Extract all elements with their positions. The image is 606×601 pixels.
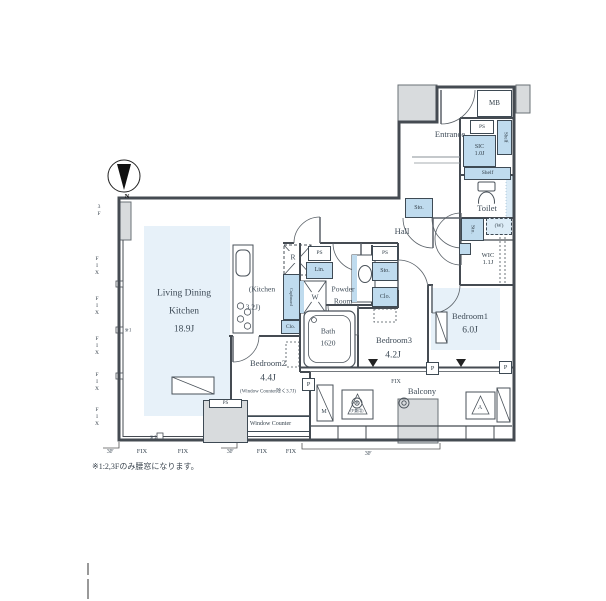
window-counter-label: Window Counter [250, 421, 291, 428]
powder-room-label-line2: Room [334, 297, 352, 305]
washing-machine-label: W [311, 293, 318, 301]
bedroom2-pipe-space [286, 342, 299, 367]
hatch-a-label: A [478, 405, 482, 411]
meter-box-mb: MB [477, 90, 512, 117]
shelf-label: Shelf [502, 132, 508, 143]
neighbor-block [398, 85, 437, 122]
fix-label-vertical: FIX [94, 407, 100, 428]
floor-plan: Living Dining Kitchen 18.9J (Kitchen 3.2… [0, 0, 606, 601]
sic-label: SIC [475, 144, 484, 151]
wic-label: WIC [482, 252, 495, 259]
footnote: ※1:2,3Fのみ腰窓になります。 [92, 461, 199, 472]
sic-closet: SIC 1.0J [463, 135, 496, 167]
bedroom1-size: 6.0J [462, 326, 478, 336]
floor-label: 3F [227, 449, 234, 456]
washer-space-label: (W) [495, 223, 504, 229]
triangle-marker [368, 359, 378, 367]
floor-label: 3F [107, 449, 114, 456]
floor-plan-drawing [0, 0, 606, 601]
hatch-b-note: (F兼用) [351, 409, 364, 413]
fix-label: FIX [257, 449, 267, 456]
hall-label: Hall [395, 227, 410, 236]
pillar-marker: P [499, 361, 512, 374]
fix-label-vertical: FIX [94, 256, 100, 277]
ps-label: PS [479, 124, 485, 130]
closet-bedroom3: Clo. [372, 287, 398, 307]
balcony-label: Balcony [408, 387, 436, 396]
pipe-space-entrance: PS [470, 120, 494, 134]
pillar-label: P [431, 365, 435, 372]
bath-label: Bath [320, 327, 336, 335]
clo-label: Clo. [380, 294, 390, 301]
bedroom1-label: Bedroom1 [452, 312, 488, 321]
floor-label: 3F [365, 451, 372, 458]
sto-label: Sto. [380, 268, 390, 275]
fix-label: FIX [137, 449, 147, 456]
fix-label-vertical: FIX [94, 336, 100, 357]
linen-closet: Lin. [306, 262, 333, 279]
ps-label: PS [223, 401, 229, 407]
lin-label: Lin. [315, 267, 325, 274]
ldk-size: 18.9J [174, 325, 194, 335]
pipe-space-bedroom3: PS [372, 246, 398, 261]
mb-label: MB [489, 99, 500, 107]
ldk-label-line2: Kitchen [169, 307, 199, 317]
bedroom2-note: (Window Counter除く3.7J) [240, 390, 296, 395]
pipe-space-kitchen: PS [308, 246, 331, 261]
toilet-door-arc [432, 218, 462, 248]
toilet-tank [478, 182, 495, 191]
shelf-label: Shelf [482, 170, 494, 176]
closet-dashed-area [374, 309, 396, 322]
wic-closet: WIC 1.1J [463, 233, 513, 285]
wic-size: 1.1J [483, 259, 494, 266]
vanity-strip [352, 255, 357, 302]
bedroom2-label: Bedroom2 [250, 359, 286, 368]
ref-mark: ※1 [125, 329, 132, 334]
toilet-label: Toilet [476, 204, 498, 213]
compass [108, 160, 140, 192]
compass-north-label: N [125, 194, 130, 201]
refrigerator-label: R [289, 253, 296, 261]
wic-door-arcs [435, 213, 461, 265]
closet-kitchen: Clo. [281, 320, 300, 334]
pillar-marker: P [426, 362, 439, 375]
pillar-label: P [307, 381, 311, 388]
bedroom3-size: 4.2J [385, 351, 401, 361]
kitchen-label: (Kitchen [249, 285, 275, 293]
clo-label: Clo. [286, 324, 295, 330]
storage-bedroom3: Sto. [372, 262, 398, 281]
sash-markers [368, 359, 466, 367]
triangle-marker [456, 359, 466, 367]
fix-label-vertical: FIX [94, 372, 100, 393]
ldk-door-arc [294, 217, 320, 243]
sto-label: Sto. [414, 205, 424, 212]
balcony-fix-label: FIX [391, 379, 401, 385]
shelf-horizontal: Shelf [464, 167, 511, 180]
cupboard-label: Cupboard [289, 288, 294, 306]
ps-label: PS [382, 250, 388, 256]
entrance-label: Entrance [435, 130, 465, 139]
hatch-b-label: B [355, 401, 358, 406]
pillar-label: P [504, 364, 508, 371]
fix-label: FIX [178, 449, 188, 456]
bedroom3-label: Bedroom3 [376, 336, 412, 345]
ref-mark: ※1 [150, 436, 157, 441]
bath-size: 1620 [320, 339, 337, 347]
powder-room-label-line1: Powder [332, 285, 355, 293]
meter-label: M [320, 409, 327, 415]
pillar-marker: P [302, 378, 315, 391]
kitchen-size: 3.2J) [246, 303, 261, 311]
bracket-3f-balcony [302, 443, 440, 449]
fix-label-vertical: FIX [94, 296, 100, 317]
sic-size: 1.0J [475, 151, 485, 158]
bedroom3-door-arc [398, 260, 428, 290]
ldk-label-line1: Living Dining [157, 289, 211, 299]
floor-label-vertical: 3F [96, 204, 102, 218]
pipe-space-protrusion-label-box: PS [209, 399, 242, 408]
shelf-vertical: Shelf [497, 120, 512, 155]
storage-hall: Sto. [405, 198, 433, 218]
neighbor-strip [516, 85, 530, 113]
ps-label: PS [316, 250, 322, 256]
fix-label: FIX [286, 449, 296, 456]
corner-pillar [119, 202, 131, 240]
cupboard: Cupboard [283, 274, 300, 320]
bedroom2-size: 4.4J [260, 374, 276, 384]
